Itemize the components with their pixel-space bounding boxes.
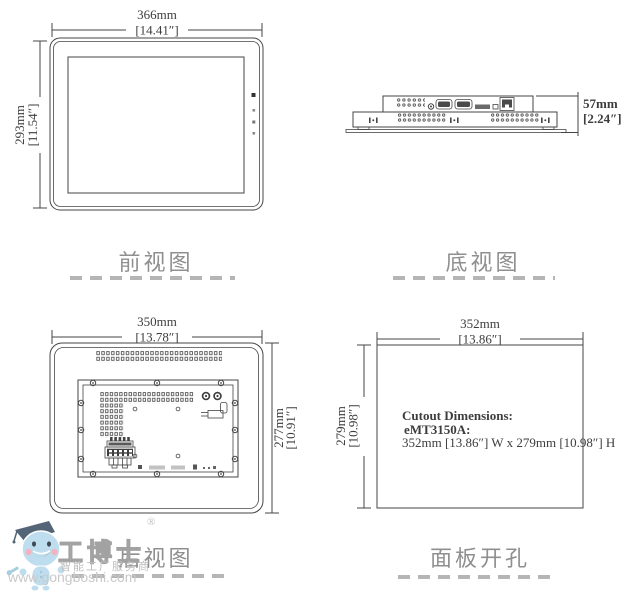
front-bezel-buttons (252, 93, 256, 135)
front-width-dimension: 366mm [14.41″] (52, 7, 262, 38)
cutout-note-size: 352mm [13.86″] W x 279mm [10.98″] H (402, 435, 615, 450)
bottom-view-label: 底视图 (445, 245, 520, 277)
front-divider-dashes (70, 276, 235, 280)
front-height-in: [11.54″] (25, 104, 40, 147)
rear-width-dimension: 350mm [13.78″] (52, 314, 262, 345)
bottom-depth-mm: 57mm (583, 96, 618, 111)
front-view-label: 前视图 (118, 245, 193, 277)
rear-panel-screw-holes (133, 407, 180, 458)
cutout-height-dimension: 279mm [10.98″] (333, 345, 371, 508)
card-slot (475, 105, 490, 110)
cutout-height-in: [10.98″] (346, 404, 361, 447)
rj45-ethernet-port (500, 98, 514, 111)
usb-port (493, 105, 498, 110)
bottom-view-drawing: 57mm [2.24″] (346, 92, 622, 136)
cutout-width-mm: 352mm (460, 316, 500, 331)
rear-top-vents (96, 351, 222, 362)
cutout-divider-dashes (398, 575, 555, 579)
antenna-connectors (202, 392, 222, 401)
terminal-block-connector (105, 437, 135, 468)
rear-width-in: [13.78″] (135, 330, 178, 345)
vent-holes (397, 99, 425, 109)
bottom-vent-pattern (369, 114, 550, 124)
rear-view-drawing: 350mm [13.78″] 277mm [10.91″] (50, 314, 298, 513)
registered-trademark-icon: ® (147, 516, 155, 528)
rear-panel-vents (100, 392, 194, 403)
rear-height-dimension: 277mm [10.91″] (265, 343, 298, 513)
rear-panel-vent-block (100, 403, 124, 437)
bottom-depth-in: [2.24″] (583, 111, 622, 126)
db9-serial-port (436, 100, 452, 110)
cutout-width-dimension: 352mm [13.86″] (377, 316, 583, 347)
front-width-mm: 366mm (137, 7, 177, 22)
rear-bottom-labels (138, 465, 216, 470)
technical-drawing-sheet: 366mm [14.41″] 293mm [11.54″] (0, 0, 640, 600)
db15-vga-port (455, 100, 472, 110)
front-screen-area (68, 57, 244, 193)
bottom-connectors (397, 98, 514, 111)
rear-height-in: [10.91″] (283, 406, 298, 449)
power-jack (201, 403, 227, 419)
panel-pc-dimension-drawing: 366mm [14.41″] 293mm [11.54″] (0, 0, 640, 600)
cutout-width-in: [13.86″] (458, 332, 501, 347)
front-view-drawing: 366mm [14.41″] 293mm [11.54″] (12, 7, 263, 210)
front-width-in: [14.41″] (135, 23, 178, 38)
cutout-note-title: Cutout Dimensions: (402, 408, 513, 423)
bottom-divider-dashes (393, 276, 555, 280)
front-height-dimension: 293mm [11.54″] (12, 41, 47, 208)
cutout-view-label: 面板开孔 (430, 541, 530, 573)
rear-width-mm: 350mm (137, 314, 177, 329)
cutout-view-drawing: 352mm [13.86″] 279mm [10.98″] Cutout Dim… (333, 316, 615, 508)
watermark-url: www.gongboshi.com (8, 569, 136, 585)
